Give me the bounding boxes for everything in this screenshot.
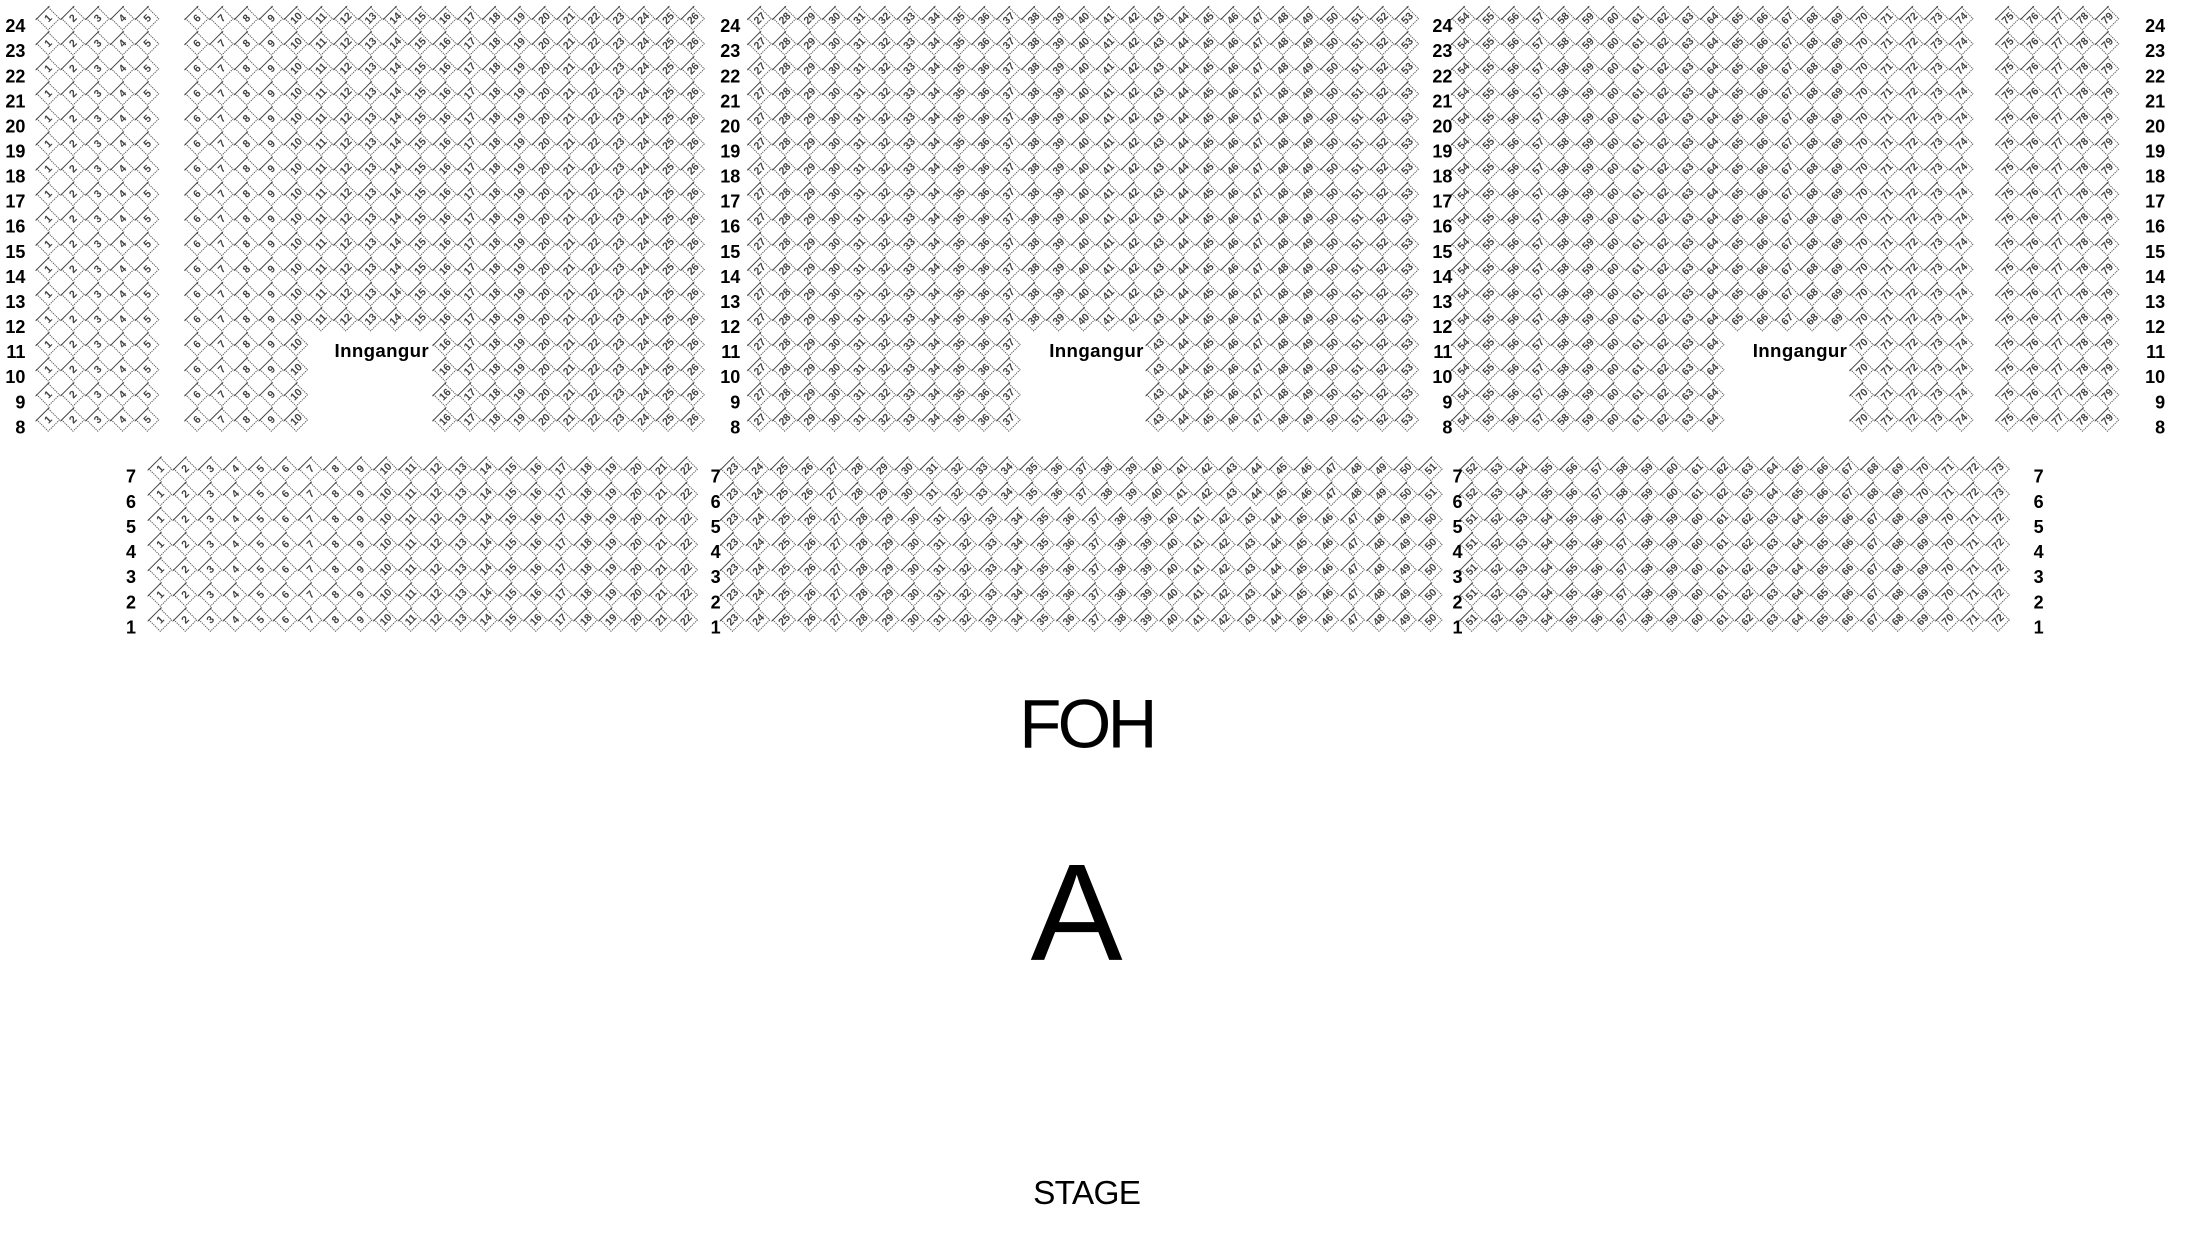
svg-text:11: 11 <box>6 342 25 362</box>
svg-text:21: 21 <box>720 91 740 111</box>
svg-text:22: 22 <box>1432 66 1452 86</box>
svg-text:9: 9 <box>2155 392 2165 412</box>
svg-text:8: 8 <box>730 417 740 437</box>
svg-text:14: 14 <box>1432 267 1452 287</box>
svg-text:14: 14 <box>720 267 740 287</box>
svg-text:6: 6 <box>711 492 721 512</box>
svg-text:7: 7 <box>711 467 721 487</box>
svg-text:11: 11 <box>721 342 740 362</box>
svg-text:17: 17 <box>720 192 740 212</box>
svg-text:1: 1 <box>711 618 721 638</box>
svg-text:24: 24 <box>1432 16 1452 36</box>
svg-text:10: 10 <box>720 367 740 387</box>
svg-text:13: 13 <box>1432 292 1452 312</box>
svg-text:11: 11 <box>2146 342 2165 362</box>
svg-text:17: 17 <box>1432 192 1452 212</box>
svg-text:9: 9 <box>730 392 740 412</box>
svg-text:1: 1 <box>1452 618 1462 638</box>
svg-text:18: 18 <box>5 167 25 187</box>
svg-text:6: 6 <box>1452 492 1462 512</box>
svg-text:19: 19 <box>720 142 740 162</box>
svg-text:10: 10 <box>2145 367 2165 387</box>
svg-text:24: 24 <box>5 16 25 36</box>
svg-text:22: 22 <box>2145 66 2165 86</box>
svg-text:16: 16 <box>1432 217 1452 237</box>
svg-text:5: 5 <box>1452 517 1462 537</box>
svg-text:16: 16 <box>720 217 740 237</box>
svg-text:19: 19 <box>1432 142 1452 162</box>
svg-text:STAGE: STAGE <box>1033 1175 1140 1212</box>
svg-text:22: 22 <box>5 66 25 86</box>
svg-text:18: 18 <box>720 167 740 187</box>
svg-text:18: 18 <box>2145 167 2165 187</box>
svg-text:12: 12 <box>1432 317 1452 337</box>
svg-text:13: 13 <box>720 292 740 312</box>
svg-text:5: 5 <box>126 517 136 537</box>
svg-text:10: 10 <box>5 367 25 387</box>
svg-text:4: 4 <box>2034 542 2044 562</box>
svg-text:23: 23 <box>1432 41 1452 61</box>
svg-text:19: 19 <box>2145 142 2165 162</box>
svg-text:21: 21 <box>5 91 25 111</box>
svg-text:15: 15 <box>720 242 740 262</box>
svg-text:7: 7 <box>1452 467 1462 487</box>
svg-text:16: 16 <box>5 217 25 237</box>
svg-text:13: 13 <box>2145 292 2165 312</box>
svg-text:13: 13 <box>5 292 25 312</box>
svg-text:2: 2 <box>1452 592 1462 612</box>
svg-text:11: 11 <box>1433 342 1452 362</box>
svg-text:15: 15 <box>2145 242 2165 262</box>
svg-text:4: 4 <box>1452 542 1462 562</box>
svg-text:20: 20 <box>720 116 740 136</box>
svg-text:17: 17 <box>5 192 25 212</box>
svg-text:6: 6 <box>126 492 136 512</box>
svg-text:19: 19 <box>5 142 25 162</box>
svg-text:14: 14 <box>2145 267 2165 287</box>
svg-text:7: 7 <box>126 467 136 487</box>
svg-text:20: 20 <box>5 116 25 136</box>
svg-text:5: 5 <box>2034 517 2044 537</box>
svg-text:12: 12 <box>5 317 25 337</box>
svg-text:6: 6 <box>2034 492 2044 512</box>
svg-text:15: 15 <box>5 242 25 262</box>
svg-text:12: 12 <box>720 317 740 337</box>
svg-text:FOH: FOH <box>1019 686 1154 763</box>
svg-text:8: 8 <box>15 417 25 437</box>
svg-text:21: 21 <box>1432 91 1452 111</box>
svg-text:3: 3 <box>126 567 136 587</box>
svg-text:14: 14 <box>5 267 25 287</box>
svg-text:3: 3 <box>711 567 721 587</box>
svg-text:2: 2 <box>126 592 136 612</box>
svg-text:Inngangur: Inngangur <box>335 340 430 361</box>
svg-text:4: 4 <box>126 542 136 562</box>
svg-text:18: 18 <box>1432 167 1452 187</box>
svg-text:21: 21 <box>2145 91 2165 111</box>
svg-text:A: A <box>1031 836 1123 990</box>
svg-text:24: 24 <box>720 16 740 36</box>
svg-text:12: 12 <box>2145 317 2165 337</box>
svg-text:3: 3 <box>1452 567 1462 587</box>
svg-text:2: 2 <box>711 592 721 612</box>
svg-text:Inngangur: Inngangur <box>1049 340 1144 361</box>
svg-text:23: 23 <box>720 41 740 61</box>
svg-text:1: 1 <box>126 618 136 638</box>
svg-text:3: 3 <box>2034 567 2044 587</box>
svg-text:23: 23 <box>5 41 25 61</box>
svg-text:4: 4 <box>711 542 721 562</box>
svg-text:17: 17 <box>2145 192 2165 212</box>
svg-text:22: 22 <box>720 66 740 86</box>
svg-text:16: 16 <box>2145 217 2165 237</box>
svg-text:1: 1 <box>2034 618 2044 638</box>
svg-text:7: 7 <box>2034 467 2044 487</box>
svg-text:9: 9 <box>1442 392 1452 412</box>
svg-text:Inngangur: Inngangur <box>1753 340 1848 361</box>
svg-text:9: 9 <box>15 392 25 412</box>
svg-text:10: 10 <box>1432 367 1452 387</box>
svg-text:24: 24 <box>2145 16 2165 36</box>
svg-text:5: 5 <box>711 517 721 537</box>
svg-text:8: 8 <box>1442 417 1452 437</box>
svg-text:2: 2 <box>2034 592 2044 612</box>
svg-text:15: 15 <box>1432 242 1452 262</box>
svg-text:8: 8 <box>2155 417 2165 437</box>
svg-text:20: 20 <box>1432 116 1452 136</box>
svg-text:20: 20 <box>2145 116 2165 136</box>
svg-text:23: 23 <box>2145 41 2165 61</box>
